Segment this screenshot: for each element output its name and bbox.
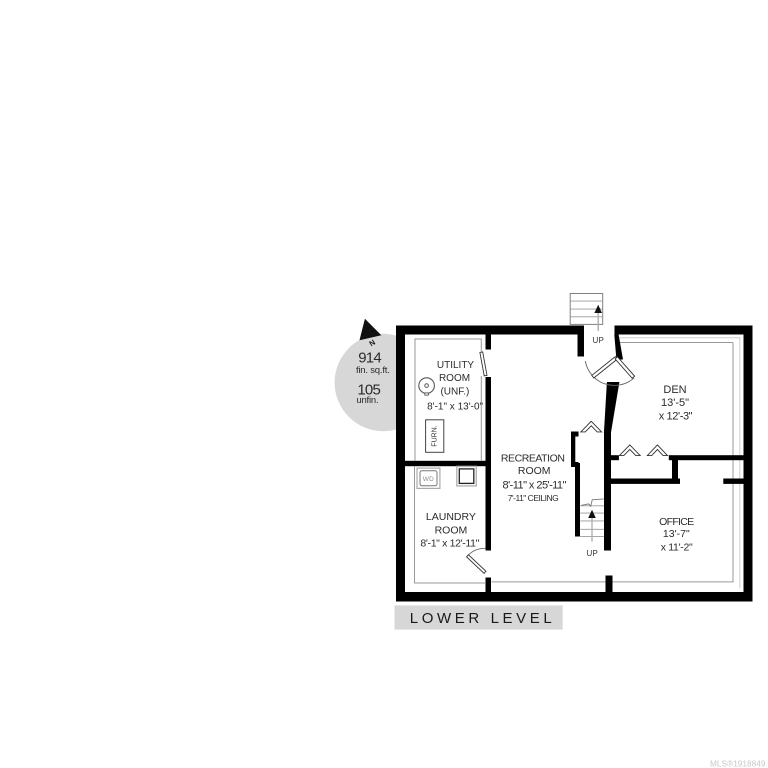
svg-text:7'-11" CEILING: 7'-11" CEILING: [508, 493, 558, 503]
svg-text:UTILITY: UTILITY: [437, 360, 475, 371]
svg-text:13'-7": 13'-7": [663, 528, 690, 540]
svg-text:8'-1" x 13'-0": 8'-1" x 13'-0": [427, 402, 483, 413]
svg-text:8'-1" x 12'-11": 8'-1" x 12'-11": [420, 537, 479, 549]
svg-text:ROOM: ROOM: [439, 373, 470, 384]
svg-text:MLS®1918849: MLS®1918849: [710, 759, 766, 768]
svg-text:(UNF.): (UNF.): [440, 386, 469, 397]
svg-text:UP: UP: [587, 549, 599, 558]
svg-text:13'-5": 13'-5": [661, 397, 689, 409]
svg-text:WD: WD: [423, 476, 434, 483]
svg-text:FURN.: FURN.: [432, 425, 439, 446]
svg-text:x 11'-2": x 11'-2": [661, 542, 693, 554]
svg-text:ROOM: ROOM: [435, 525, 468, 537]
svg-text:UP: UP: [593, 336, 605, 345]
svg-text:x 12'-3": x 12'-3": [659, 410, 693, 422]
svg-text:fin. sq.ft.: fin. sq.ft.: [356, 365, 390, 376]
svg-text:LOWER LEVEL: LOWER LEVEL: [410, 610, 555, 627]
svg-text:OFFICE: OFFICE: [659, 516, 694, 528]
svg-text:ROOM: ROOM: [518, 465, 551, 477]
svg-text:DEN: DEN: [663, 384, 686, 396]
svg-text:RECREATION: RECREATION: [501, 453, 565, 465]
svg-text:8'-11" x 25'-11": 8'-11" x 25'-11": [503, 479, 567, 491]
svg-text:LAUNDRY: LAUNDRY: [426, 511, 476, 523]
svg-text:unfin.: unfin.: [356, 395, 378, 406]
